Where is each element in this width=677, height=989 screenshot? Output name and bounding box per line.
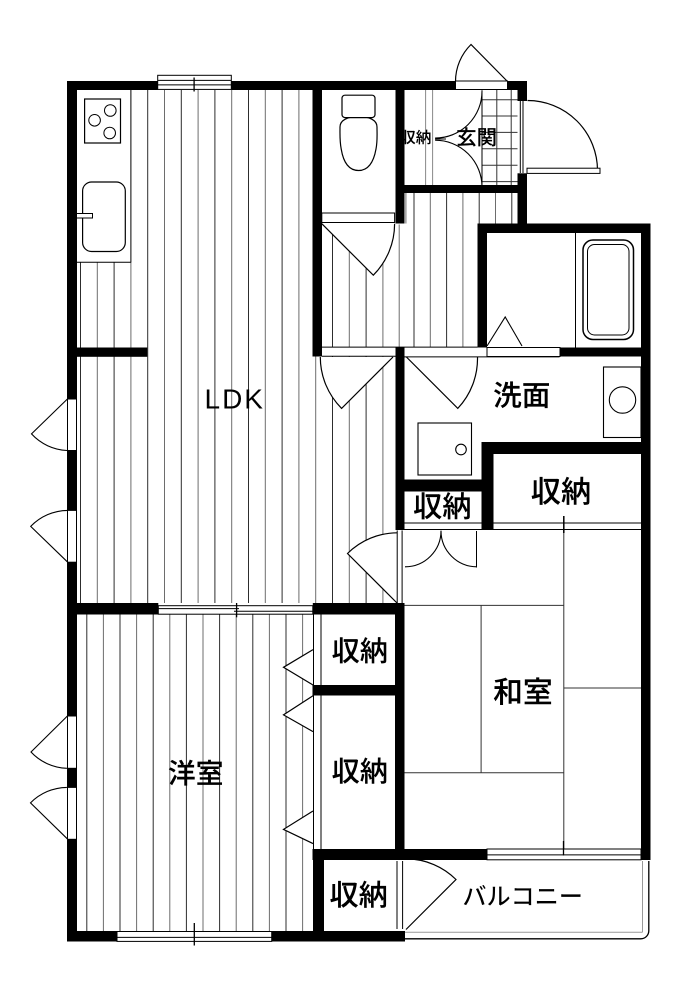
svg-text:LDK: LDK <box>205 384 265 415</box>
